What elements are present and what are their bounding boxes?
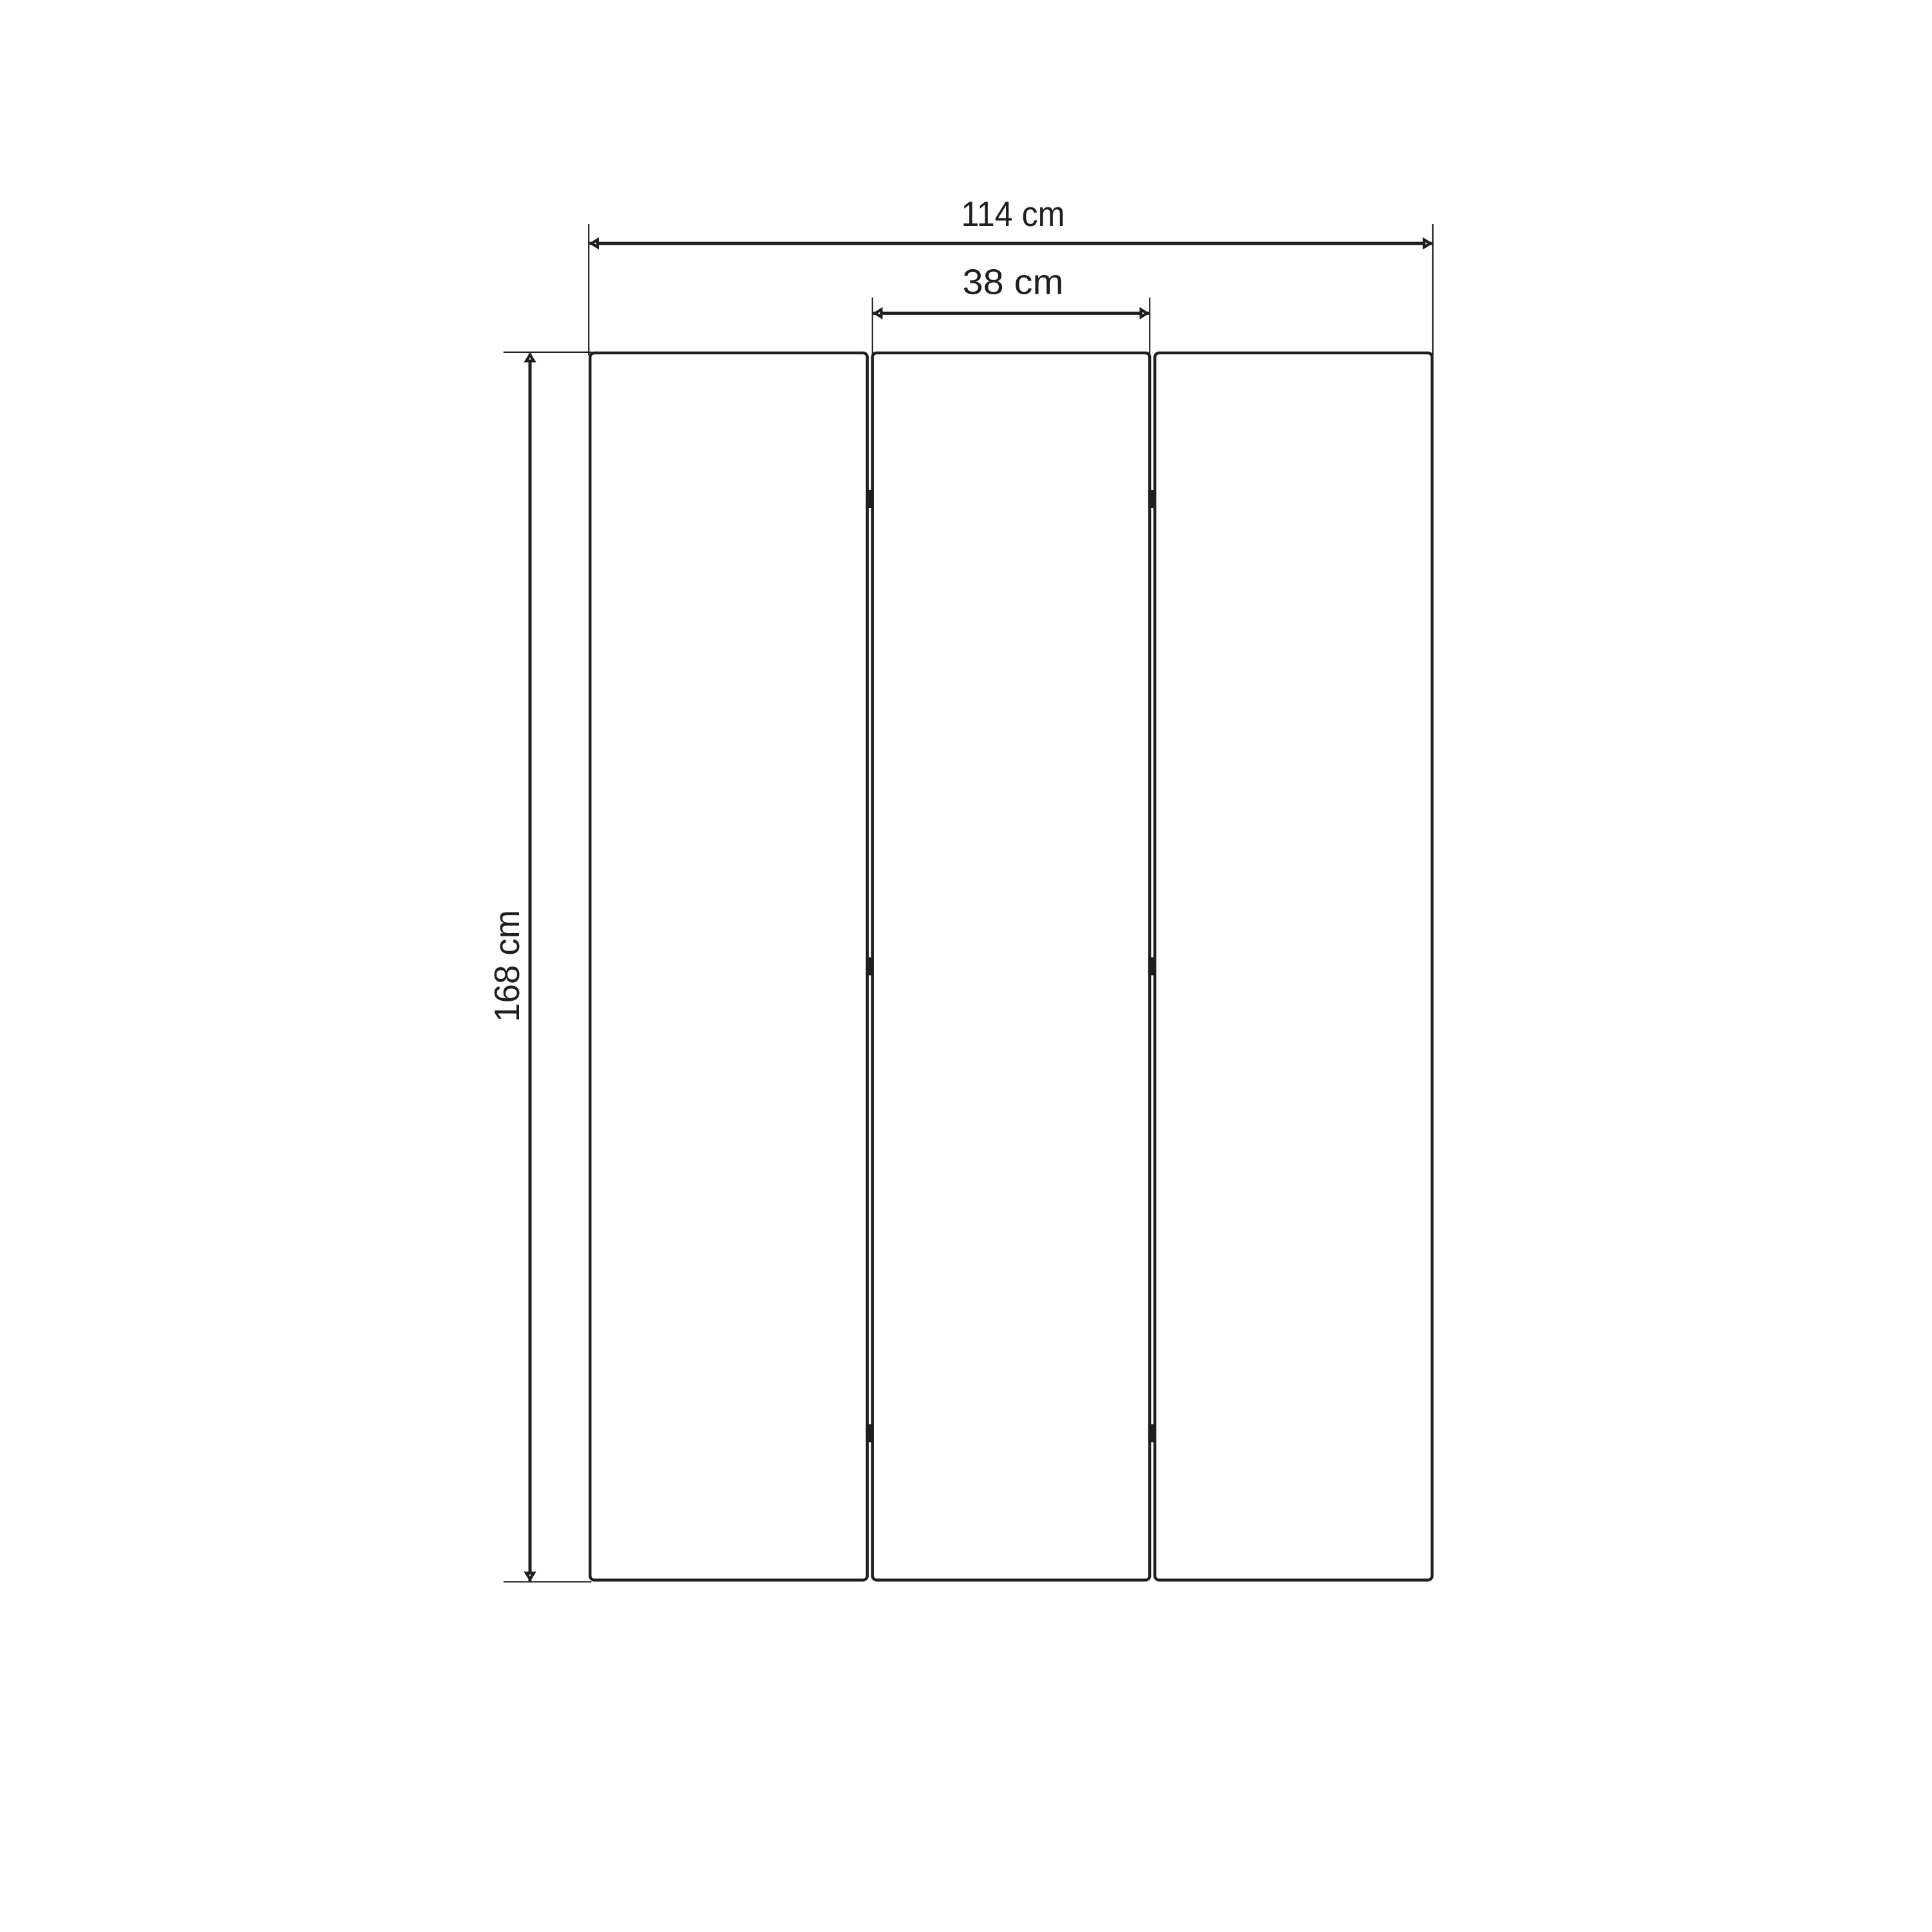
svg-text:114 cm: 114 cm (961, 194, 1065, 234)
svg-text:38 cm: 38 cm (963, 262, 1064, 302)
svg-text:168 cm: 168 cm (487, 910, 527, 1022)
